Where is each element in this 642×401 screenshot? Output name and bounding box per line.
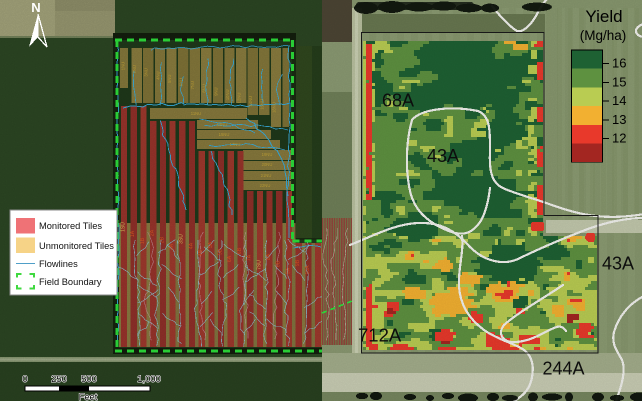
svg-text:15: 15 bbox=[612, 74, 626, 89]
svg-text:16: 16 bbox=[612, 56, 626, 71]
svg-text:250: 250 bbox=[51, 373, 67, 384]
svg-text:Flowlines: Flowlines bbox=[39, 259, 78, 269]
svg-text:Feet: Feet bbox=[79, 391, 98, 401]
svg-text:(Mg/ha): (Mg/ha) bbox=[580, 28, 627, 43]
svg-text:500: 500 bbox=[81, 373, 97, 384]
svg-text:N: N bbox=[31, 0, 40, 15]
svg-text:43A: 43A bbox=[427, 146, 459, 166]
svg-text:712A: 712A bbox=[358, 325, 402, 346]
svg-text:Monitored Tiles: Monitored Tiles bbox=[39, 221, 102, 231]
svg-text:13: 13 bbox=[612, 112, 626, 127]
svg-text:1,000: 1,000 bbox=[137, 373, 160, 384]
svg-text:Unmonitored Tiles: Unmonitored Tiles bbox=[39, 241, 114, 251]
svg-text:68A: 68A bbox=[382, 91, 414, 111]
svg-text:43A: 43A bbox=[602, 254, 634, 274]
svg-text:14: 14 bbox=[612, 93, 626, 108]
svg-text:Yield: Yield bbox=[585, 7, 622, 26]
svg-text:12: 12 bbox=[612, 131, 626, 146]
svg-text:244A: 244A bbox=[542, 359, 584, 379]
svg-text:Field Boundary: Field Boundary bbox=[39, 277, 102, 287]
svg-text:0: 0 bbox=[22, 373, 27, 384]
